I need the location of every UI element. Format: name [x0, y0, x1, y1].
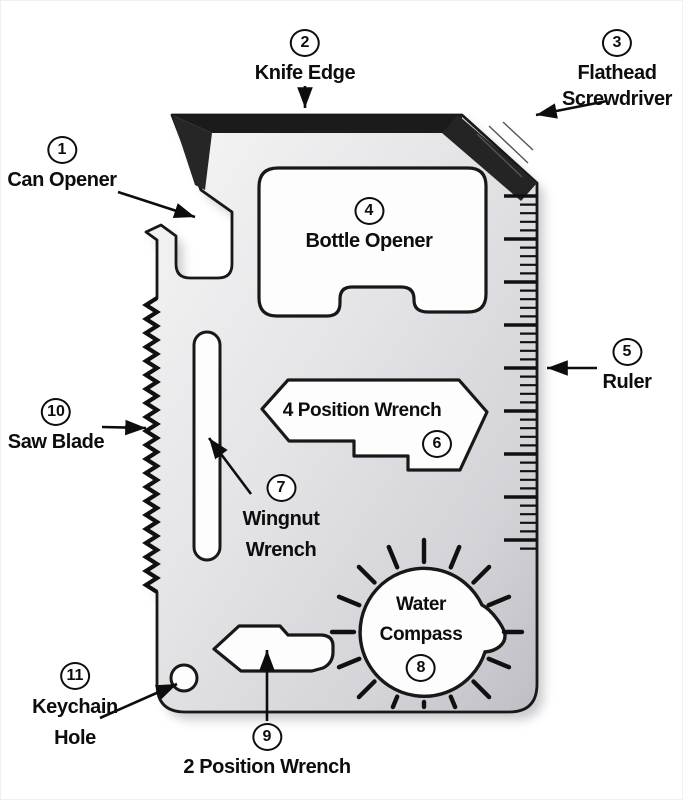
- two-position-wrench-label-text: 2 Position Wrench: [183, 754, 350, 780]
- label-bottle-opener: 4 Bottle Opener: [305, 197, 432, 254]
- four-position-wrench-number-badge: 6: [422, 430, 452, 458]
- saw-blade-arrow: [102, 427, 146, 428]
- bottle-opener-label-text: Bottle Opener: [305, 228, 432, 254]
- saw-blade-label-text: Saw Blade: [8, 429, 104, 455]
- can-opener-arrow: [118, 192, 195, 217]
- keychain-hole: [171, 665, 197, 691]
- two-position-wrench-number-badge: 9: [252, 723, 282, 751]
- label-four-position-wrench: 4 Position Wrench: [283, 398, 442, 423]
- label-knife-edge: 2 Knife Edge: [255, 29, 355, 86]
- flathead-label-line1: Flathead: [577, 60, 656, 86]
- label-keychain-hole: 11 Keychain Hole: [32, 662, 118, 753]
- bottle-opener-number-badge: 4: [354, 197, 384, 225]
- four-position-wrench-label-text: 4 Position Wrench: [283, 398, 442, 423]
- can-opener-number-badge: 1: [47, 136, 77, 164]
- saw-blade-number-badge: 10: [41, 398, 71, 426]
- wingnut-label-line1: Wingnut: [243, 505, 320, 533]
- wingnut-label-line2: Wrench: [246, 536, 317, 564]
- label-ruler: 5 Ruler: [602, 338, 651, 395]
- four-position-wrench-badge-wrap: 6: [422, 430, 452, 458]
- water-compass-label-line1: Water: [396, 592, 446, 619]
- knife-edge-number-badge: 2: [290, 29, 320, 57]
- diagram-stage: 1 Can Opener 2 Knife Edge 3 Flathead Scr…: [0, 0, 683, 800]
- knife-edge-label-text: Knife Edge: [255, 60, 355, 86]
- keychain-label-line1: Keychain: [32, 693, 118, 721]
- keychain-number-badge: 11: [60, 662, 90, 690]
- label-wingnut-wrench: 7 Wingnut Wrench: [243, 474, 320, 565]
- water-compass-number-badge: 8: [406, 654, 436, 682]
- flathead-label-line2: Screwdriver: [562, 86, 672, 112]
- can-opener-label-text: Can Opener: [7, 167, 116, 193]
- label-saw-blade: 10 Saw Blade: [8, 398, 104, 455]
- ruler-label-text: Ruler: [602, 369, 651, 395]
- label-water-compass: Water Compass 8: [380, 592, 463, 682]
- flathead-number-badge: 3: [602, 29, 632, 57]
- keychain-label-line2: Hole: [54, 724, 96, 752]
- wingnut-number-badge: 7: [266, 474, 296, 502]
- water-compass-label-line2: Compass: [380, 622, 463, 649]
- label-can-opener: 1 Can Opener: [7, 136, 116, 193]
- label-flathead-screwdriver: 3 Flathead Screwdriver: [562, 29, 672, 113]
- ruler-number-badge: 5: [612, 338, 642, 366]
- label-two-position-wrench: 9 2 Position Wrench: [183, 723, 350, 780]
- knife-edge-bevel: [172, 115, 462, 133]
